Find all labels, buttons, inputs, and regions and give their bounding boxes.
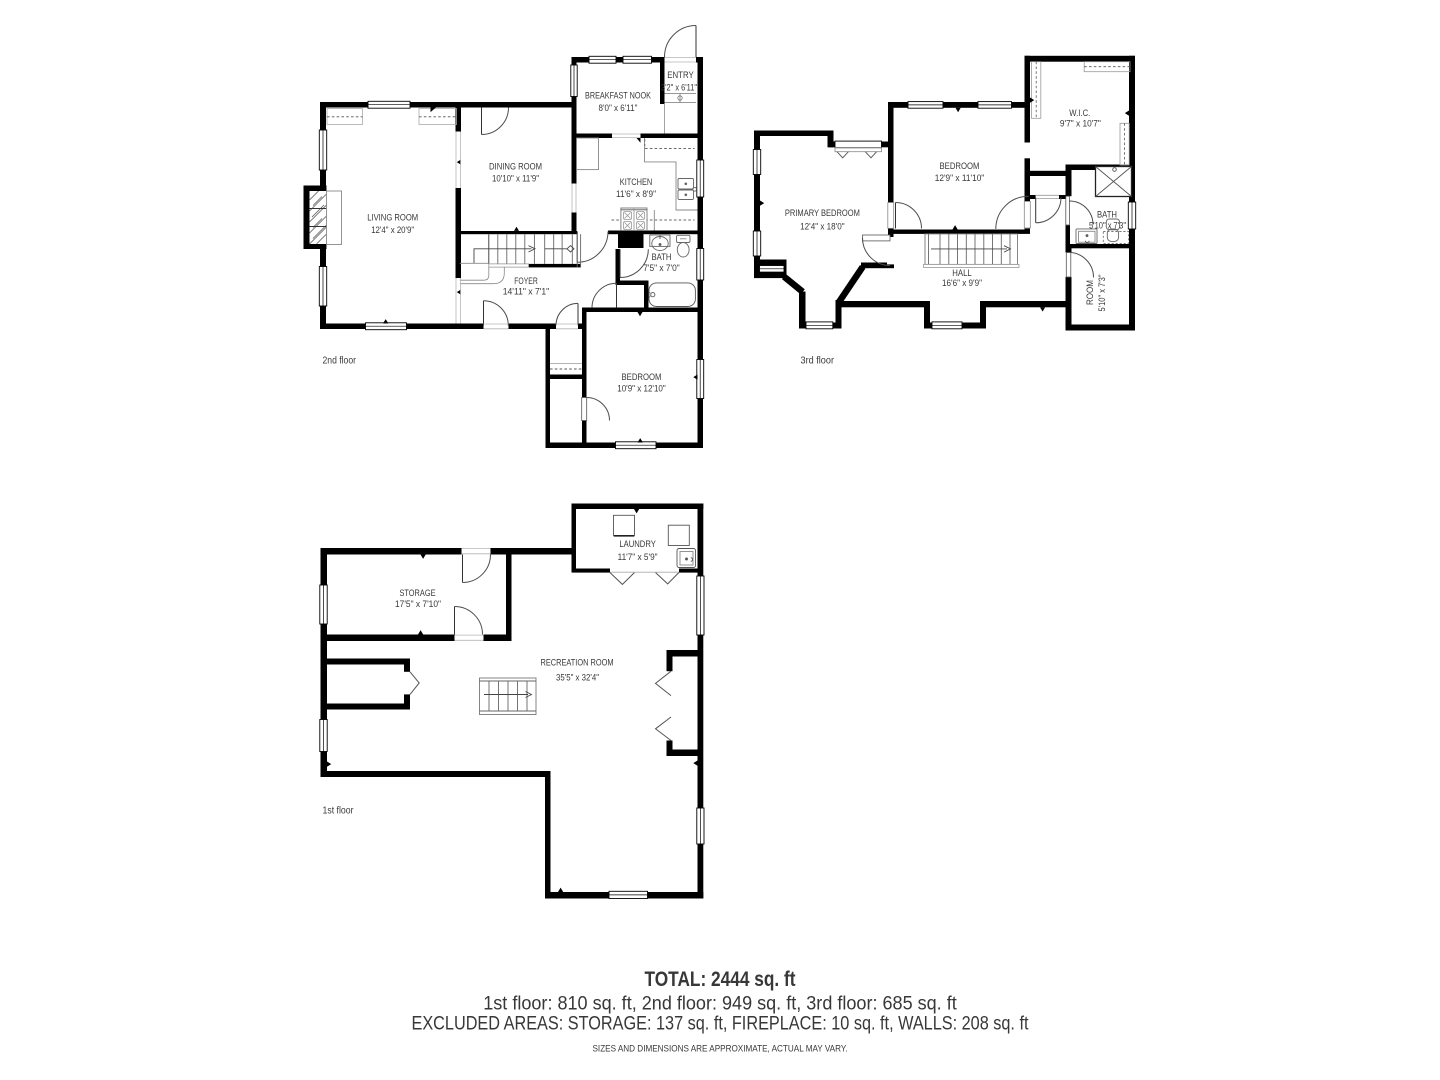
svg-text:HALL: HALL [952, 268, 972, 278]
svg-text:EXCLUDED AREAS: STORAGE: 137 s: EXCLUDED AREAS: STORAGE: 137 sq. ft, FIR… [412, 1013, 1029, 1035]
svg-text:8'0" x 6'11": 8'0" x 6'11" [599, 103, 638, 113]
svg-text:STORAGE: STORAGE [400, 588, 436, 598]
svg-text:3'2" x 6'11": 3'2" x 6'11" [661, 83, 697, 93]
svg-text:3rd floor: 3rd floor [801, 355, 835, 367]
svg-text:12'4" x 20'9": 12'4" x 20'9" [371, 225, 414, 235]
svg-text:BEDROOM: BEDROOM [940, 161, 980, 171]
svg-text:11'7" x 5'9": 11'7" x 5'9" [618, 552, 658, 562]
svg-text:35'5" x 32'4": 35'5" x 32'4" [556, 672, 599, 682]
svg-text:17'5" x 7'10": 17'5" x 7'10" [395, 599, 441, 609]
svg-text:LAUNDRY: LAUNDRY [619, 539, 656, 549]
svg-text:ENTRY: ENTRY [667, 70, 694, 80]
svg-text:11'6" x 8'9": 11'6" x 8'9" [616, 189, 656, 199]
svg-text:12'9" x 11'10": 12'9" x 11'10" [935, 173, 985, 183]
svg-text:BREAKFAST NOOK: BREAKFAST NOOK [585, 91, 652, 101]
svg-text:12'4" x 18'0": 12'4" x 18'0" [800, 221, 845, 231]
svg-text:5'10" x 7'3": 5'10" x 7'3" [1097, 275, 1107, 312]
svg-text:1st floor: 810 sq. ft, 2nd flo: 1st floor: 810 sq. ft, 2nd floor: 949 sq… [483, 993, 957, 1015]
svg-text:7'5" x 7'0": 7'5" x 7'0" [643, 263, 680, 273]
svg-text:BATH: BATH [1097, 210, 1117, 220]
svg-text:LIVING ROOM: LIVING ROOM [367, 212, 418, 222]
svg-text:DINING ROOM: DINING ROOM [489, 161, 542, 171]
svg-text:BATH: BATH [652, 252, 672, 262]
svg-text:2nd floor: 2nd floor [323, 355, 357, 367]
svg-text:1st floor: 1st floor [323, 805, 354, 817]
svg-text:RECREATION ROOM: RECREATION ROOM [541, 657, 614, 667]
svg-text:FOYER: FOYER [514, 276, 538, 286]
svg-text:16'6" x 9'9": 16'6" x 9'9" [942, 278, 982, 288]
svg-text:W.I.C.: W.I.C. [1069, 108, 1090, 118]
svg-text:9'7" x 10'7": 9'7" x 10'7" [1060, 119, 1101, 129]
svg-text:5'10" x 7'3": 5'10" x 7'3" [1089, 220, 1126, 230]
svg-text:KITCHEN: KITCHEN [620, 177, 653, 187]
svg-text:SIZES AND DIMENSIONS ARE APPRO: SIZES AND DIMENSIONS ARE APPROXIMATE, AC… [593, 1044, 848, 1055]
svg-text:10'9" x 12'10": 10'9" x 12'10" [617, 383, 666, 393]
svg-text:PRIMARY BEDROOM: PRIMARY BEDROOM [785, 208, 860, 218]
svg-text:ROOM: ROOM [1085, 280, 1095, 305]
svg-text:BEDROOM: BEDROOM [622, 372, 662, 382]
svg-text:TOTAL: 2444 sq. ft: TOTAL: 2444 sq. ft [645, 967, 796, 991]
svg-text:10'10" x 11'9": 10'10" x 11'9" [492, 173, 539, 183]
svg-text:14'11" x 7'1": 14'11" x 7'1" [503, 287, 550, 297]
